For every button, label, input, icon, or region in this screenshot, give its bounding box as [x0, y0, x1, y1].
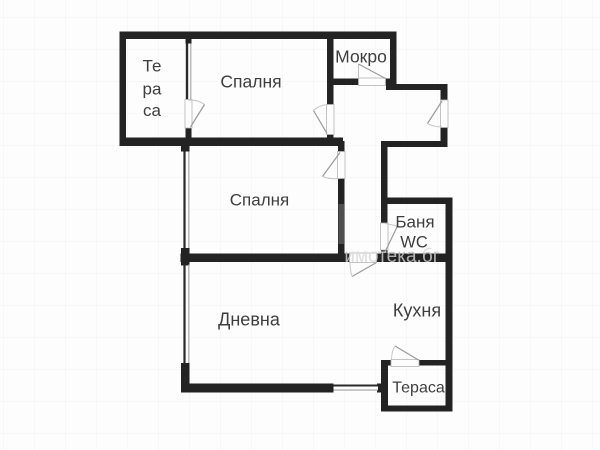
svg-text:Тераса: Тераса: [392, 380, 445, 397]
svg-text:Баня: Баня: [395, 213, 434, 232]
svg-text:Спалня: Спалня: [220, 72, 281, 92]
svg-text:ра: ра: [143, 80, 162, 99]
svg-text:са: са: [143, 101, 162, 120]
svg-text:Мокро: Мокро: [335, 47, 387, 67]
svg-text:Те: Те: [143, 57, 162, 76]
svg-text:Дневна: Дневна: [218, 310, 281, 330]
svg-text:Кухня: Кухня: [393, 301, 441, 321]
svg-text:Спалня: Спалня: [230, 191, 289, 210]
